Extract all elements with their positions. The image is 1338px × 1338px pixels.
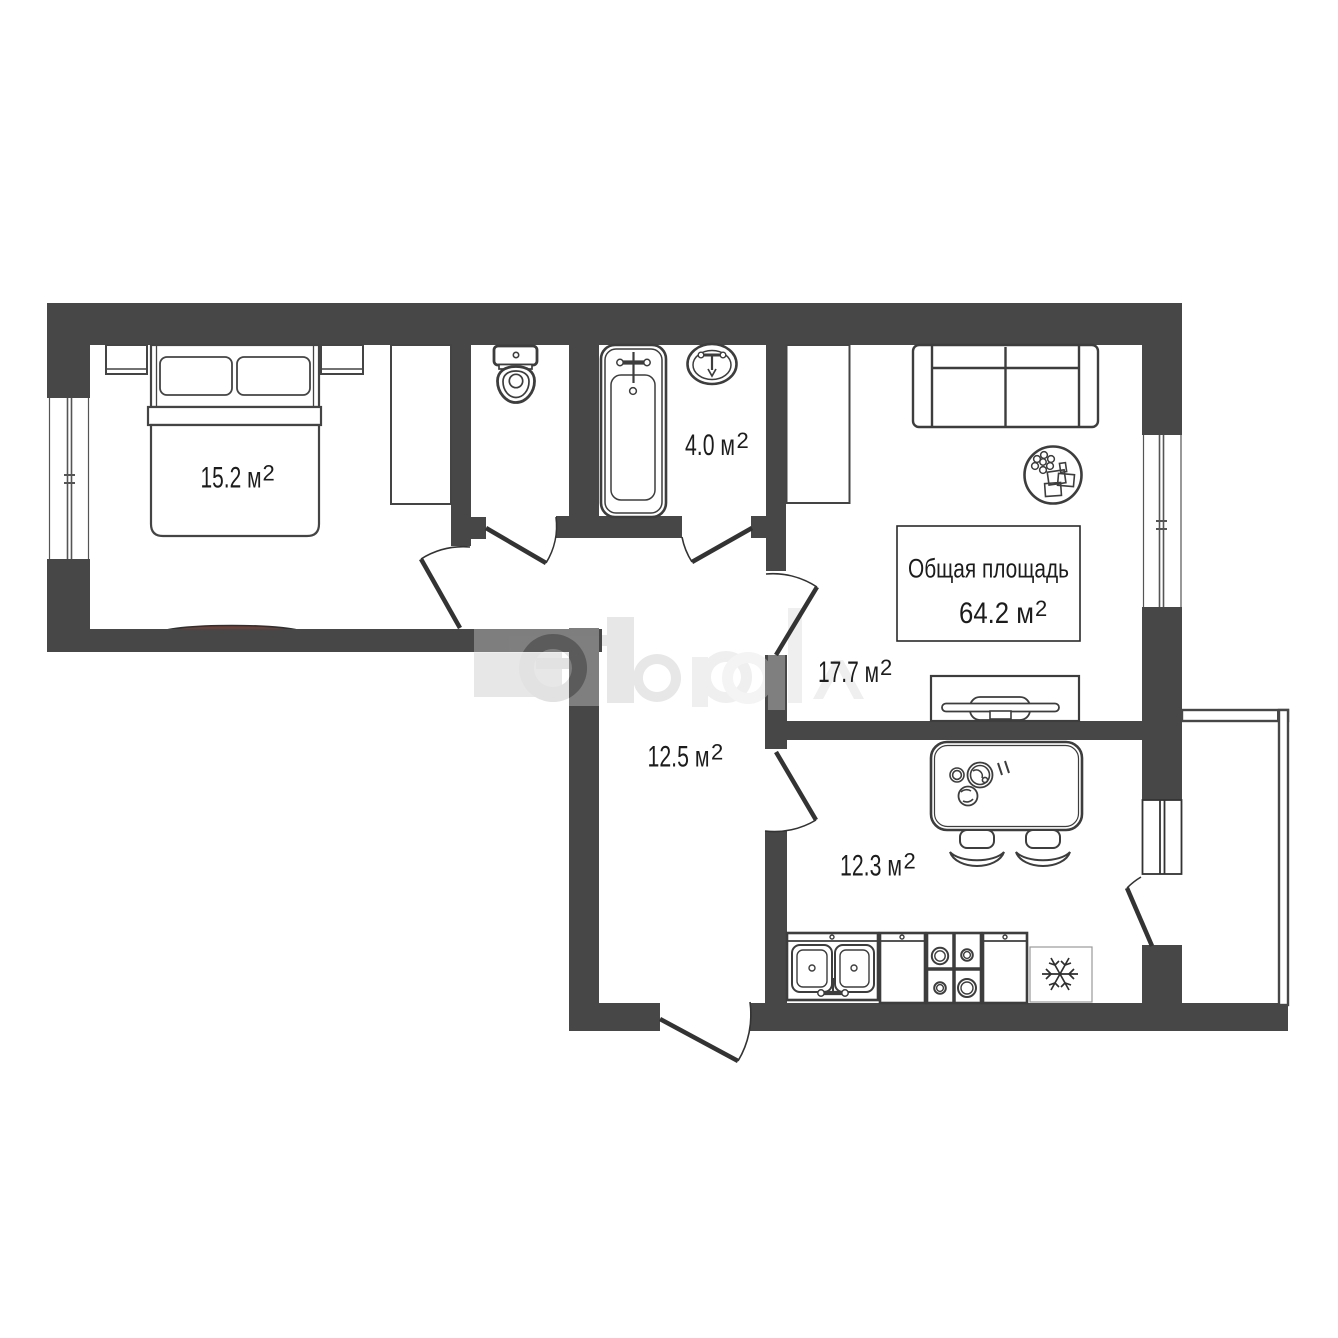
svg-text:2: 2 bbox=[880, 655, 892, 680]
svg-text:12.3 м: 12.3 м bbox=[840, 850, 902, 883]
svg-text:15.2 м: 15.2 м bbox=[201, 462, 262, 495]
svg-text:12.5 м: 12.5 м bbox=[648, 741, 710, 774]
svg-text:Общая площадь: Общая площадь bbox=[908, 554, 1069, 584]
svg-text:17.7 м: 17.7 м bbox=[818, 656, 879, 689]
svg-text:64.2 м: 64.2 м bbox=[959, 597, 1034, 630]
svg-text:2: 2 bbox=[1035, 596, 1047, 621]
svg-text:2: 2 bbox=[737, 428, 749, 453]
svg-text:2: 2 bbox=[711, 740, 723, 765]
svg-text:4.0 м: 4.0 м bbox=[685, 429, 735, 462]
svg-text:2: 2 bbox=[263, 461, 275, 486]
svg-text:2: 2 bbox=[904, 849, 916, 874]
